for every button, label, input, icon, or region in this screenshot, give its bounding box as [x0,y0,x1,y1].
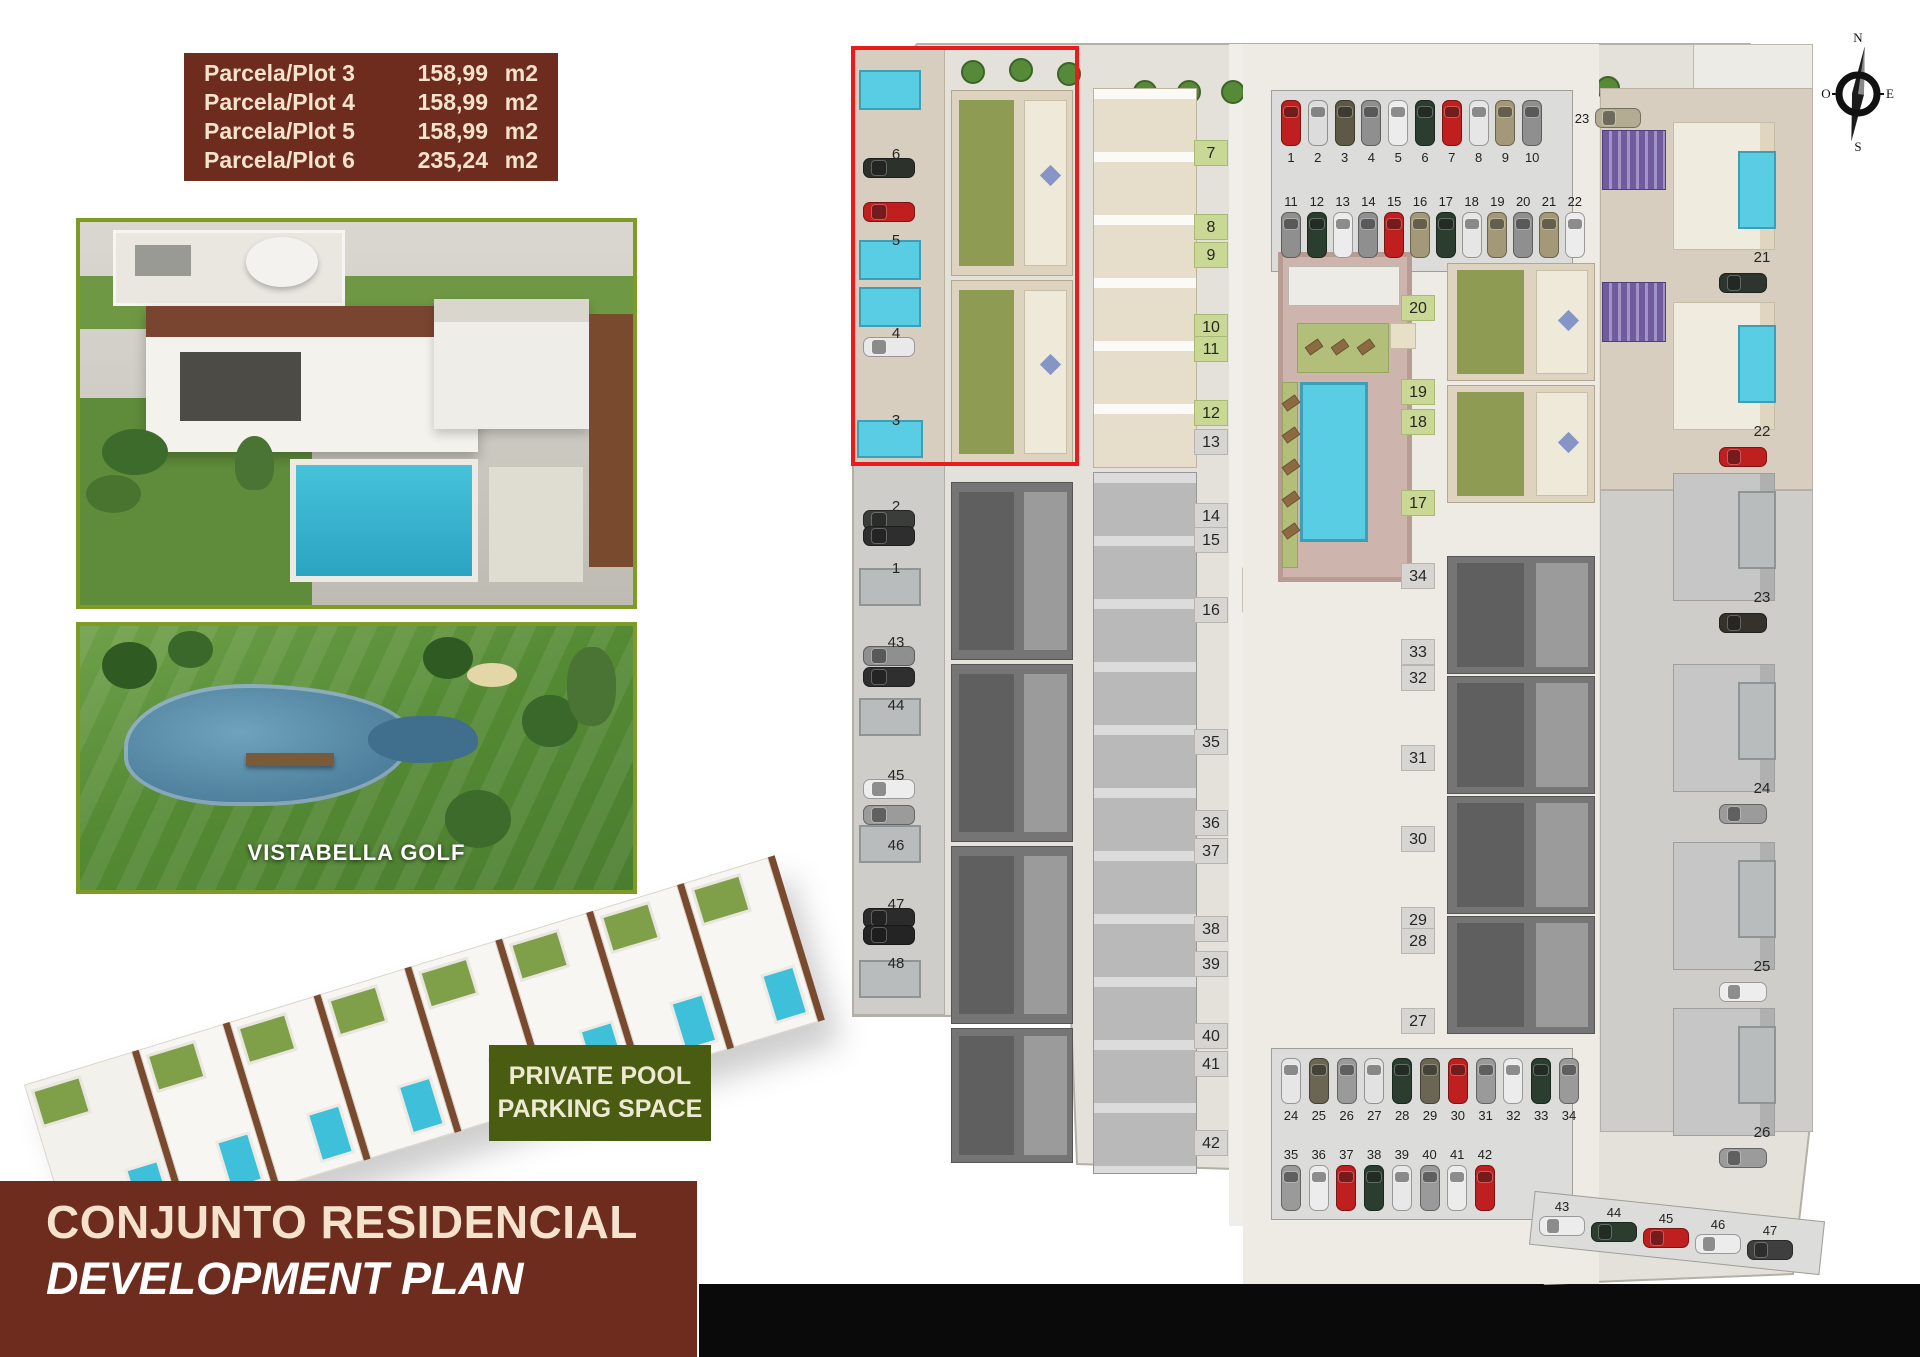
parking-car-43 [1539,1216,1585,1236]
parking-number-41: 41 [1444,1147,1470,1162]
plot-label-2: 2 [879,494,913,520]
parking-number-15: 15 [1381,194,1407,209]
plot-area-value: 235,24 [396,147,488,174]
parking-car-30 [1448,1058,1468,1104]
parking-car-34 [1559,1058,1579,1104]
parking-car-13 [1333,212,1353,258]
parking-car-23 [1595,108,1641,128]
parking-number-23: 23 [1569,111,1595,126]
roof-garden [331,988,385,1034]
bottom-black-bar [699,1284,1920,1357]
plot-label-40: 40 [1194,1023,1228,1049]
plot-label-27: 27 [1401,1008,1435,1034]
plot-pool [1738,491,1776,569]
parking-car-7 [1442,100,1462,146]
parking-car-25 [1309,1058,1329,1104]
roof-garden [240,1016,294,1062]
communal-pool [1300,382,1368,542]
compass-west: O [1821,86,1830,101]
plot-label-25: 25 [1745,954,1779,980]
plot-label-24: 24 [1745,776,1779,802]
compass-east: E [1886,86,1894,101]
window-wall [180,352,302,421]
plot-label-31: 31 [1401,745,1435,771]
side-roof-edge [434,299,589,322]
plot-label-42: 42 [1194,1130,1228,1156]
plot-label-33: 33 [1401,639,1435,665]
plot-label-17: 17 [1401,490,1435,516]
plot-label: Parcela/Plot 5 [204,118,396,145]
parking-number-11: 11 [1278,194,1304,209]
bridge [246,753,334,766]
compass-south: S [1854,139,1861,152]
tree [168,631,212,668]
plot-pool [1738,860,1776,938]
plot-area-value: 158,99 [396,118,488,145]
parking-number-34: 34 [1556,1108,1582,1123]
plot-label-43: 43 [879,630,913,656]
villa-pool [764,968,806,1021]
plot-size-table: Parcela/Plot 3 158,99 m2 Parcela/Plot 4 … [184,53,558,181]
villa-pool [309,1107,351,1160]
parking-car-38 [1364,1165,1384,1211]
plot-label-15: 15 [1194,527,1228,553]
parking-car-22 [1565,212,1585,258]
site-plan: 6543214344454647487891011121314151635363… [845,30,1820,1285]
parking-number-7: 7 [1439,150,1465,165]
parking-car-3 [1335,100,1355,146]
parking-car-45 [1643,1228,1689,1248]
parking-number-33: 33 [1528,1108,1554,1123]
parking-number-4: 4 [1358,150,1384,165]
parking-number-42: 42 [1472,1147,1498,1162]
golf-caption: VISTABELLA GOLF [80,840,633,866]
roof-garden [694,877,748,923]
townhouse-row-active [1093,88,1197,468]
development-title-block: CONJUNTO RESIDENCIAL DEVELOPMENT PLAN [0,1181,697,1357]
parking-car-28 [1392,1058,1412,1104]
plot-pool [1738,151,1776,229]
feature-badge: PRIVATE POOL PARKING SPACE [489,1045,711,1141]
boundary-fence [589,314,633,567]
plot-label-44: 44 [879,693,913,719]
title-english: DEVELOPMENT PLAN [46,1253,697,1305]
title-spanish: CONJUNTO RESIDENCIAL [46,1195,697,1249]
townhouse-row-phase2 [1093,472,1197,1174]
roof-garden [603,905,657,951]
parking-car-27 [1364,1058,1384,1104]
villa-pool [219,1135,261,1188]
plot-label-30: 30 [1401,826,1435,852]
golf-course-photo: VISTABELLA GOLF [76,622,637,894]
parked-car [1719,1148,1767,1168]
parking-number-13: 13 [1330,194,1356,209]
parking-number-46: 46 [1705,1217,1731,1232]
parking-number-14: 14 [1355,194,1381,209]
parking-car-9 [1495,100,1515,146]
parking-number-2: 2 [1305,150,1331,165]
plot-label-47: 47 [879,892,913,918]
brochure-page: Parcela/Plot 3 158,99 m2 Parcela/Plot 4 … [0,0,1920,1357]
potted-plant [235,436,274,490]
parking-car-26 [1337,1058,1357,1104]
sun-lounger [1357,338,1376,355]
duplex-building-gray [951,664,1073,842]
pergola-purple [1602,282,1666,342]
parking-number-1: 1 [1278,150,1304,165]
plot-table-row: Parcela/Plot 6 235,24 m2 [204,147,538,174]
tree [102,429,168,475]
parked-car [1719,982,1767,1002]
parking-car-42 [1475,1165,1495,1211]
pool-house [1288,266,1400,306]
plot-area-unit: m2 [488,89,538,116]
plot-table-row: Parcela/Plot 3 158,99 m2 [204,60,538,87]
plot-label-48: 48 [879,951,913,977]
deck-pad [1390,323,1416,349]
parking-number-5: 5 [1385,150,1411,165]
parking-number-35: 35 [1278,1147,1304,1162]
duplex-building-gray [1447,676,1595,794]
parking-number-20: 20 [1510,194,1536,209]
badge-line-1: PRIVATE POOL [509,1060,691,1093]
parking-number-40: 40 [1417,1147,1443,1162]
plot-label-9: 9 [1194,242,1228,268]
plot-label-12: 12 [1194,400,1228,426]
plot-label-16: 16 [1194,597,1228,623]
plot-label-22: 22 [1745,419,1779,445]
terrace-sofa [135,245,190,276]
parking-number-25: 25 [1306,1108,1332,1123]
parking-car-8 [1469,100,1489,146]
parking-number-45: 45 [1653,1211,1679,1226]
parking-number-12: 12 [1304,194,1330,209]
plot-label-37: 37 [1194,838,1228,864]
plot-table-row: Parcela/Plot 4 158,99 m2 [204,89,538,116]
parking-car-18 [1462,212,1482,258]
plot-label-39: 39 [1194,951,1228,977]
parking-car-12 [1307,212,1327,258]
roof-fascia [146,306,478,337]
parked-car [1719,273,1767,293]
villa-pool [673,996,715,1049]
parking-number-8: 8 [1466,150,1492,165]
plot-area-unit: m2 [488,60,538,87]
parking-car-16 [1410,212,1430,258]
plot-label-35: 35 [1194,729,1228,755]
plot-label-18: 18 [1401,409,1435,435]
parking-number-37: 37 [1333,1147,1359,1162]
parking-car-17 [1436,212,1456,258]
plot-pool [1738,682,1776,760]
parking-car-24 [1281,1058,1301,1104]
parking-car-5 [1388,100,1408,146]
plot-label: Parcela/Plot 3 [204,60,396,87]
plot-area-value: 158,99 [396,89,488,116]
plot-label-32: 32 [1401,665,1435,691]
duplex-building-gray [1447,796,1595,914]
plot-label-38: 38 [1194,916,1228,942]
parking-number-30: 30 [1445,1108,1471,1123]
parking-number-22: 22 [1562,194,1588,209]
parking-number-19: 19 [1484,194,1510,209]
parking-number-29: 29 [1417,1108,1443,1123]
plot-label-41: 41 [1194,1051,1228,1077]
lake-arm [368,716,479,764]
compass-needle [1845,46,1870,143]
parked-car [863,526,915,546]
plot-label-20: 20 [1401,295,1435,321]
parking-car-41 [1447,1165,1467,1211]
parking-number-18: 18 [1459,194,1485,209]
parked-car [1719,804,1767,824]
duplex-building-gray [951,846,1073,1024]
parking-car-29 [1420,1058,1440,1104]
parking-number-39: 39 [1389,1147,1415,1162]
parking-number-28: 28 [1389,1108,1415,1123]
plot-label-34: 34 [1401,563,1435,589]
private-pool [290,459,478,582]
roof-garden [513,932,567,978]
parking-number-21: 21 [1536,194,1562,209]
duplex-building-gray [951,1028,1073,1163]
patio-table [1558,310,1579,331]
parking-number-27: 27 [1361,1108,1387,1123]
plot-area-value: 158,99 [396,60,488,87]
duplex-building-gray [1447,556,1595,674]
parking-number-26: 26 [1334,1108,1360,1123]
roof-garden [422,960,476,1006]
compass-rose: N O E S [1818,30,1898,152]
parking-number-16: 16 [1407,194,1433,209]
parking-car-33 [1531,1058,1551,1104]
plot-label-13: 13 [1194,429,1228,455]
parking-number-38: 38 [1361,1147,1387,1162]
tree [423,637,473,679]
parked-car [863,667,915,687]
villa-render-photo [76,218,637,609]
parking-number-36: 36 [1306,1147,1332,1162]
parking-car-14 [1358,212,1378,258]
parking-car-2 [1308,100,1328,146]
plot-label-46: 46 [879,833,913,859]
parking-car-37 [1336,1165,1356,1211]
parking-car-31 [1476,1058,1496,1104]
parking-number-47: 47 [1757,1223,1783,1238]
parking-car-11 [1281,212,1301,258]
villa-pool [400,1079,442,1132]
parking-number-6: 6 [1412,150,1438,165]
plot-label-8: 8 [1194,214,1228,240]
parking-number-24: 24 [1278,1108,1304,1123]
sand-bunker [467,663,517,687]
plot-label: Parcela/Plot 4 [204,89,396,116]
sunbathing-lawn [1297,323,1389,373]
parking-car-15 [1384,212,1404,258]
parking-car-19 [1487,212,1507,258]
pergola-purple [1602,130,1666,190]
plot-label-23: 23 [1745,585,1779,611]
plot-label-11: 11 [1194,336,1228,362]
parking-number-43: 43 [1549,1199,1575,1214]
lawn-strip [1282,382,1298,568]
parked-car [1719,613,1767,633]
parking-car-32 [1503,1058,1523,1104]
parking-car-1 [1281,100,1301,146]
parking-car-6 [1415,100,1435,146]
highlighted-plots-outline [851,46,1079,466]
parking-car-40 [1420,1165,1440,1211]
parking-number-9: 9 [1492,150,1518,165]
plot-label-36: 36 [1194,810,1228,836]
parking-car-36 [1309,1165,1329,1211]
parking-car-4 [1361,100,1381,146]
pool-deck [489,467,583,582]
tree [86,475,141,513]
sun-lounger [1305,338,1324,355]
plot-label-14: 14 [1194,503,1228,529]
parking-car-47 [1747,1240,1793,1260]
parking-number-31: 31 [1473,1108,1499,1123]
roof-garden [34,1079,88,1125]
roof-garden [149,1043,203,1089]
parking-car-20 [1513,212,1533,258]
parking-car-35 [1281,1165,1301,1211]
plot-label: Parcela/Plot 6 [204,147,396,174]
plot-area-unit: m2 [488,118,538,145]
parasol [246,237,318,287]
parked-car [1719,447,1767,467]
parked-car [863,805,915,825]
parking-number-10: 10 [1519,150,1545,165]
parking-car-46 [1695,1234,1741,1254]
parking-car-39 [1392,1165,1412,1211]
plot-label-26: 26 [1745,1120,1779,1146]
plot-label-28: 28 [1401,928,1435,954]
duplex-building-gray [1447,916,1595,1034]
patio-table [1558,432,1579,453]
plot-area-unit: m2 [488,147,538,174]
parking-car-44 [1591,1222,1637,1242]
duplex-building-gray [951,482,1073,660]
compass-north: N [1853,30,1863,45]
plot-label-21: 21 [1745,245,1779,271]
plot-pool [1738,325,1776,403]
palm-trees [567,647,617,726]
parking-car-10 [1522,100,1542,146]
duplex-building [1447,263,1595,381]
plot-label-45: 45 [879,763,913,789]
badge-line-2: PARKING SPACE [498,1093,703,1126]
parking-number-32: 32 [1500,1108,1526,1123]
plot-label-7: 7 [1194,140,1228,166]
duplex-building [1447,385,1595,503]
parking-number-17: 17 [1433,194,1459,209]
plot-table-row: Parcela/Plot 5 158,99 m2 [204,118,538,145]
sun-lounger [1331,338,1350,355]
parking-number-44: 44 [1601,1205,1627,1220]
plot-label-1: 1 [879,556,913,582]
plot-label-19: 19 [1401,379,1435,405]
parking-car-21 [1539,212,1559,258]
parked-car [863,925,915,945]
plot-pool [1738,1026,1776,1104]
parking-number-3: 3 [1332,150,1358,165]
